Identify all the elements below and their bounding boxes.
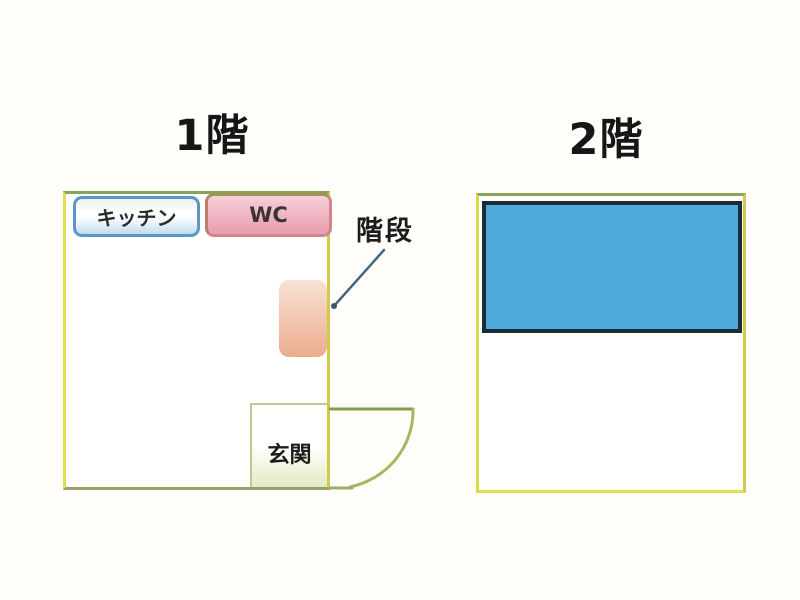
stairs-callout-line <box>334 250 384 306</box>
entrance-label: 玄関 <box>252 437 327 469</box>
door-swing-arc <box>350 409 413 487</box>
floor2-plan <box>476 193 746 493</box>
stairs-callout-endpoint <box>331 303 337 309</box>
floor1-plan: キッチン WC 玄関 <box>63 191 330 490</box>
floor2-title: 2階 <box>536 105 676 167</box>
stairs-callout-label: 階段 <box>356 209 414 248</box>
floor2-highlighted-room <box>482 201 742 333</box>
floor-plan-diagram: 1階 2階 キッチン WC 玄関 階段 <box>0 0 800 600</box>
floor1-title: 1階 <box>142 101 282 163</box>
entrance-area: 玄関 <box>250 403 327 487</box>
wc-room-tag: WC <box>205 193 332 237</box>
stairs-box <box>279 280 327 357</box>
wc-label: WC <box>249 203 288 227</box>
kitchen-label: キッチン <box>97 202 177 231</box>
kitchen-room-tag: キッチン <box>73 196 200 237</box>
